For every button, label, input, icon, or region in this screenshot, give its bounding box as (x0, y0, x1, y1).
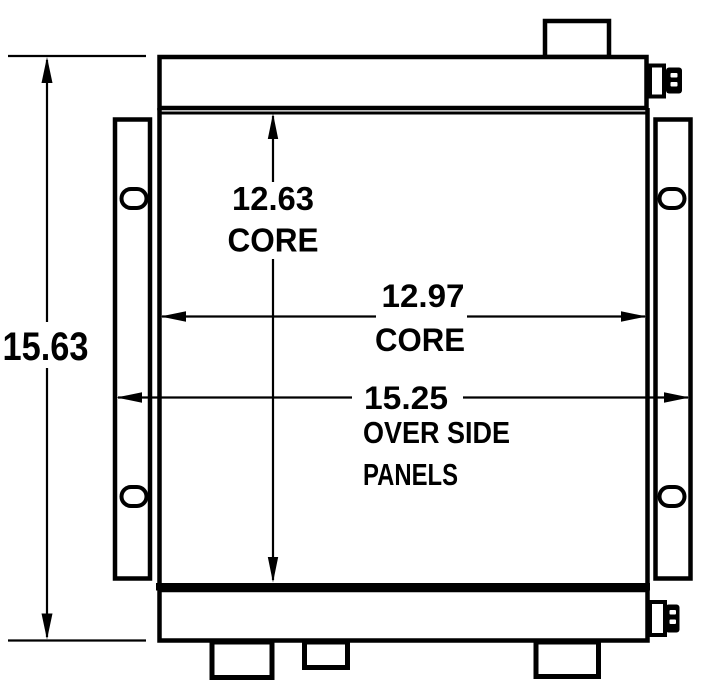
bottom-foot-right (536, 642, 599, 677)
mounting-slot-right-top (660, 189, 685, 208)
dim-label-core-width-suffix: CORE (375, 322, 465, 358)
arrowhead-right-icon (621, 311, 647, 321)
top-fitting-plug (666, 68, 682, 94)
bottom-plug-thread-mark (670, 620, 677, 625)
bottom-fitting-plug (666, 605, 680, 633)
top-plug-thread-mark (671, 73, 678, 78)
dim-label-core-width: 12.97 (382, 278, 465, 314)
mounting-slot-right-bottom (660, 487, 685, 506)
dim-core-height: 12.63 CORE (228, 114, 319, 583)
top-port-stub (545, 21, 609, 57)
bottom-foot-center (305, 642, 348, 668)
mounting-slot-left-top (122, 189, 147, 208)
bottom-foot-left (212, 642, 272, 678)
dim-label-core-height-suffix: CORE (228, 222, 319, 259)
arrowhead-up-icon (42, 57, 53, 83)
dim-label-over-side-panels-line2: PANELS (363, 457, 458, 492)
dim-core-width: 12.97 CORE (161, 278, 647, 358)
bottom-fitting-boss (650, 602, 665, 635)
dim-label-overall-height: 15.63 (3, 325, 89, 369)
dimension-annotations: 15.63 12.63 CORE 12.97 CORE 15.25 (3, 56, 690, 641)
top-tank (160, 57, 647, 108)
arrowhead-left-icon (161, 311, 187, 321)
mounting-slot-left-bottom (122, 487, 147, 506)
bottom-plug-thread-mark (670, 610, 677, 615)
arrowhead-down-icon (268, 557, 278, 583)
top-plug-thread-mark (671, 82, 678, 87)
dim-label-over-side-panels-line1: OVER SIDE (363, 415, 510, 450)
dim-over-side-panels: 15.25 OVER SIDE PANELS (117, 380, 690, 492)
arrowhead-down-icon (42, 614, 53, 640)
bottom-tank (160, 590, 648, 641)
cooler-outline-drawing: 15.63 12.63 CORE 12.97 CORE 15.25 (0, 0, 720, 699)
arrowhead-up-icon (268, 114, 278, 140)
top-fitting-boss (650, 66, 664, 97)
technical-drawing-page: 15.63 12.63 CORE 12.97 CORE 15.25 (0, 0, 720, 699)
dim-label-core-height: 12.63 (232, 180, 314, 217)
dim-label-over-side-panels: 15.25 (364, 380, 448, 416)
